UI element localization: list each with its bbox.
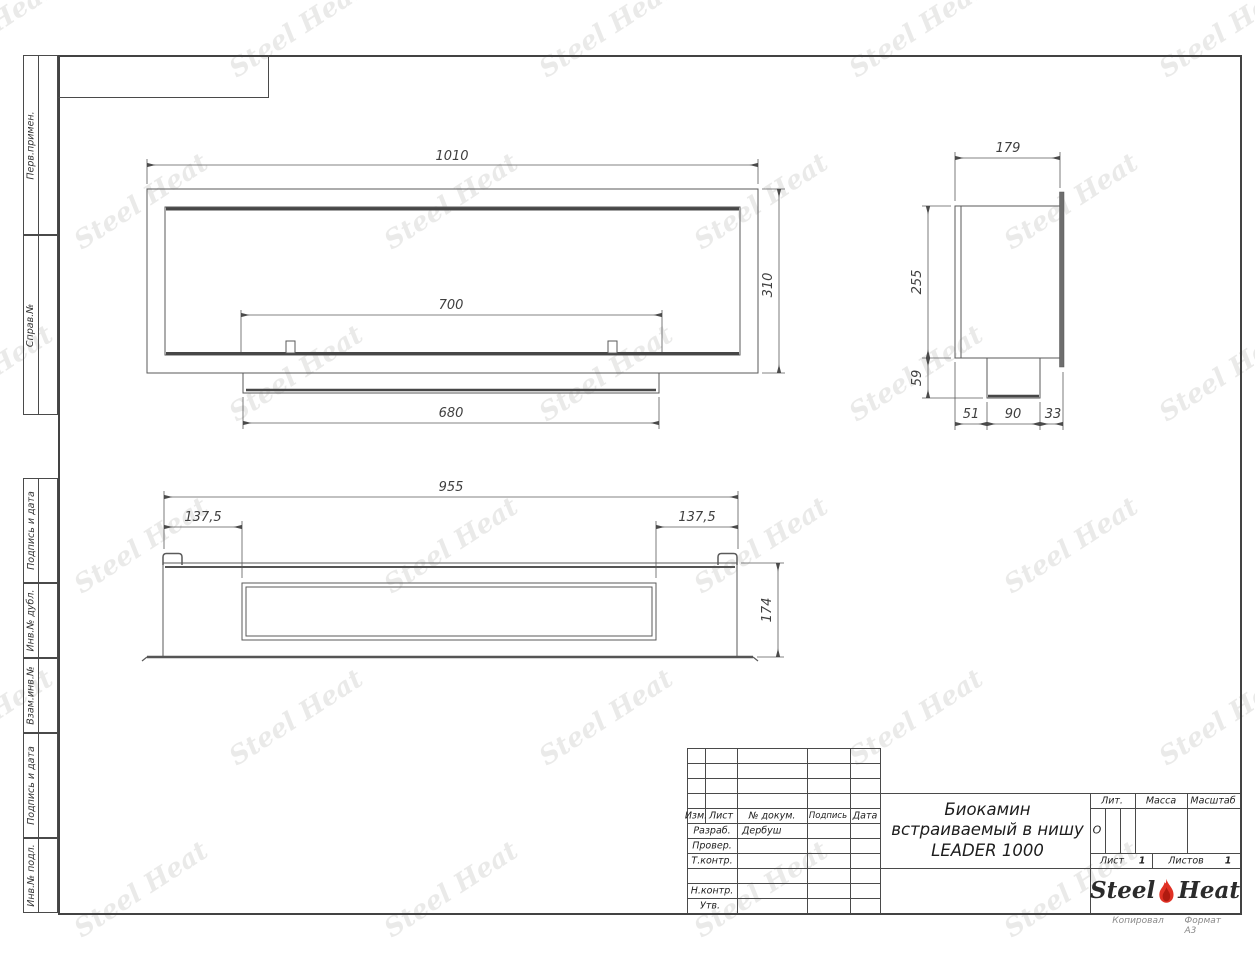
drawing-title: Биокамин встраиваемый в нишу LEADER 1000 xyxy=(885,795,1090,866)
drawing-sheet: Steel HeatSteel HeatSteel HeatSteel Heat… xyxy=(0,0,1255,970)
title-block-grid-line xyxy=(687,898,880,899)
title-line-2: встраиваемый в нишу xyxy=(891,820,1084,841)
top-left-designation-cell xyxy=(58,55,269,98)
tb-lit-label: Лит. xyxy=(1101,796,1123,807)
title-line-3: LEADER 1000 xyxy=(931,841,1044,862)
strip-label: Подпись и дата xyxy=(24,479,38,582)
tb-role-razrab: Разраб. xyxy=(693,826,730,837)
title-block-grid-line xyxy=(687,748,688,913)
title-block-grid-line xyxy=(1105,808,1106,853)
strip-label: Взам.инв.№ xyxy=(24,659,38,732)
tb-sheet-value: 1 xyxy=(1139,856,1146,867)
margin-strip-podpis-data-2: Подпись и дата xyxy=(23,733,58,838)
margin-strip-vzam-inv: Взам.инв.№ xyxy=(23,658,58,733)
title-block-grid-line xyxy=(1090,853,1240,854)
title-block-grid-line xyxy=(687,853,880,854)
title-block-grid-line xyxy=(687,808,880,809)
title-line-1: Биокамин xyxy=(944,800,1030,821)
margin-strip-inv-podl: Инв.№ подл. xyxy=(23,838,58,913)
tb-header-date: Дата xyxy=(853,811,878,822)
strip-label: Инв.№ дубл. xyxy=(24,584,38,657)
logo-heat: Heat xyxy=(1178,877,1240,904)
margin-strip-perv-primen: Перв.примен. xyxy=(23,55,58,235)
title-block-grid-line xyxy=(1120,808,1121,853)
strip-label: Подпись и дата xyxy=(24,734,38,837)
title-block-grid-line xyxy=(687,778,880,779)
margin-strip-inv-dubl: Инв.№ дубл. xyxy=(23,583,58,658)
title-block-grid-line xyxy=(807,748,808,913)
tb-header-doc: № докум. xyxy=(749,811,796,822)
strip-label: Перв.примен. xyxy=(24,56,38,234)
tb-sheets-value: 1 xyxy=(1225,856,1232,867)
title-block-grid-line xyxy=(687,763,880,764)
strip-label: Справ.№ xyxy=(24,236,38,414)
steelheat-logo: Steel Heat xyxy=(1090,868,1240,913)
tb-header-sign: Подпись xyxy=(809,811,847,821)
title-block-grid-line xyxy=(687,793,1240,794)
sheet-frame xyxy=(58,55,1242,915)
tb-lit-value: О xyxy=(1093,824,1102,837)
title-block-grid-line xyxy=(687,883,880,884)
title-block-grid-line xyxy=(687,868,880,869)
title-block-grid-line xyxy=(1187,793,1188,853)
tb-header-izm: Изм. xyxy=(685,811,707,822)
margin-strip-sprav-no: Справ.№ xyxy=(23,235,58,415)
flame-icon xyxy=(1157,877,1176,905)
tb-role-tkontr: Т.контр. xyxy=(691,856,732,867)
title-block-grid-line xyxy=(737,748,738,913)
title-block-grid-line xyxy=(687,823,880,824)
tb-sheets-label: Листов xyxy=(1168,856,1204,867)
tb-role-razrab-name: Дербуш xyxy=(742,826,781,837)
tb-role-nkontr: Н.контр. xyxy=(691,886,734,897)
tb-role-utv: Утв. xyxy=(700,901,720,912)
title-block-grid-line xyxy=(687,838,880,839)
title-block-grid-line xyxy=(850,748,851,913)
logo-steel: Steel xyxy=(1090,877,1155,904)
title-block-grid-line xyxy=(880,748,881,913)
margin-strip-podpis-data-1: Подпись и дата xyxy=(23,478,58,583)
tb-role-prover: Провер. xyxy=(692,841,731,852)
tb-sheet-label: Лист xyxy=(1100,856,1124,867)
copied-label: Копировал xyxy=(1112,916,1163,926)
tb-scale-label: Масштаб xyxy=(1190,796,1235,807)
tb-header-list: Лист xyxy=(709,811,733,822)
title-block-grid-line xyxy=(1152,853,1153,868)
title-block-grid-line xyxy=(1090,808,1240,809)
title-block-grid-line xyxy=(687,748,880,749)
title-block-grid-line xyxy=(1135,793,1136,853)
strip-label: Инв.№ подл. xyxy=(24,839,38,912)
format-label: Формат A3 xyxy=(1185,916,1232,936)
tb-mass-label: Масса xyxy=(1146,796,1176,807)
